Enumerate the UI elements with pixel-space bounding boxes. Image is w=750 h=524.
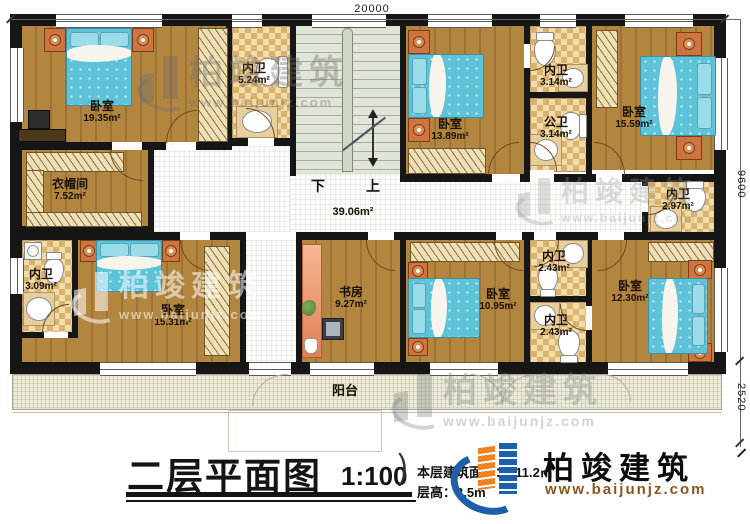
wardrobe [198, 28, 228, 142]
paren-mark: ) [398, 449, 408, 489]
room-label-bedroom-bl: 卧室15.31m² [140, 304, 206, 329]
door-gap [112, 142, 142, 150]
stair-arrow-line [372, 112, 374, 158]
door-gap [248, 138, 274, 146]
bed [408, 54, 484, 118]
window [310, 362, 374, 376]
nightstand [408, 338, 428, 356]
window [56, 14, 162, 28]
wall-int [240, 232, 246, 362]
bedroom-bl-floor-ext [22, 338, 78, 362]
door-gap [530, 170, 554, 182]
dim-right-lower-label: 2520 [735, 383, 747, 411]
window [232, 14, 262, 28]
dim-line-top [10, 19, 740, 20]
room-label-bedroom-tr: 卧室15.59m² [602, 106, 666, 131]
room-label-bath-243b: 内卫2.43m² [528, 314, 584, 339]
nightstand [132, 28, 154, 52]
window [312, 14, 386, 28]
wall-int [400, 174, 714, 182]
room-label-bath-243a: 内卫2.43m² [526, 250, 582, 275]
wall-int [400, 232, 406, 362]
bed [96, 240, 162, 292]
window [430, 362, 498, 376]
stray-tick-mark [737, 448, 746, 457]
stairs-down-label: 下 [311, 176, 325, 196]
toilet-tank [560, 355, 578, 363]
wall-int [400, 26, 406, 176]
wardrobe [596, 30, 618, 108]
window [608, 362, 688, 376]
wall-int [290, 26, 296, 176]
door-gap [180, 232, 210, 240]
nightstand [44, 28, 66, 52]
door-gap [534, 232, 556, 240]
door-gap [598, 232, 624, 240]
bed [66, 28, 132, 106]
room-label-bedroom-tl: 卧室19.35m² [72, 100, 132, 125]
door-gap [166, 142, 196, 150]
toilet-tank [540, 289, 556, 297]
brand-url: www.baijunjz.com [545, 481, 706, 498]
room-label-bath-top: 内卫5.24m² [226, 62, 282, 87]
window [428, 14, 492, 28]
toilet-tank [536, 32, 554, 41]
wardrobe [648, 242, 714, 262]
room-label-study: 书房9.27m² [320, 286, 382, 311]
balcony-label: 阳台 [320, 384, 370, 399]
wall-int [72, 240, 78, 332]
brand-logo-icon [449, 441, 537, 507]
wardrobe [26, 152, 124, 172]
room-label-bedroom-tm: 卧室13.89m² [418, 118, 482, 143]
stair-arrow-up [368, 104, 378, 118]
window [100, 362, 196, 376]
nightstand [676, 136, 702, 160]
door-gap [368, 232, 394, 240]
corridor-floor [290, 174, 642, 232]
room-label-bedroom-br: 卧室12.30m² [598, 280, 662, 305]
window [714, 268, 728, 352]
room-label-bath-gong: 公卫3.14m² [528, 116, 584, 141]
nightstand [676, 32, 702, 56]
room-label-bath-n: 内卫3.14m² [528, 64, 584, 89]
title-underline-thick [126, 492, 412, 497]
dresser [28, 110, 50, 129]
wall-int [586, 26, 592, 176]
hall-floor [154, 146, 290, 232]
window [540, 14, 576, 28]
stair-arrow-down [368, 158, 378, 172]
toilet-tank [46, 252, 62, 260]
door-gap [496, 232, 522, 240]
hall-area-label: 39.06m² [318, 206, 388, 218]
room-label-bedroom-bm: 卧室10.95m² [466, 288, 530, 313]
dim-right-upper-label: 9600 [735, 170, 747, 198]
logo-blue-building [499, 443, 517, 494]
window [625, 14, 693, 28]
waste-bin [304, 338, 318, 354]
dim-top-label: 20000 [340, 3, 404, 15]
wall-int [22, 232, 246, 240]
logo-orange-building [478, 446, 495, 490]
door-gap [492, 174, 520, 182]
room-label-bath-left: 内卫3.09m² [12, 268, 70, 293]
door-gap [596, 174, 622, 182]
computer-monitor [322, 318, 344, 340]
nightstand [408, 30, 430, 54]
nightstand [162, 240, 180, 262]
floorplan-page: { "dims": {"top": "20000", "right_upper"… [0, 0, 750, 509]
wall-int [148, 150, 154, 232]
stairs-up-label: 上 [366, 176, 380, 196]
washing-machine [24, 242, 42, 260]
passage-floor [246, 240, 296, 362]
wardrobe [408, 148, 486, 174]
wardrobe [26, 212, 142, 227]
room-label-cloakroom: 衣帽间7.52m² [34, 178, 106, 203]
nightstand [688, 260, 712, 279]
window [714, 58, 728, 150]
title-underline-thin [126, 500, 416, 502]
wall-int [530, 92, 586, 98]
window [10, 48, 24, 122]
desk [18, 129, 66, 142]
room-label-bath-297: 内卫2.97m² [648, 188, 708, 213]
